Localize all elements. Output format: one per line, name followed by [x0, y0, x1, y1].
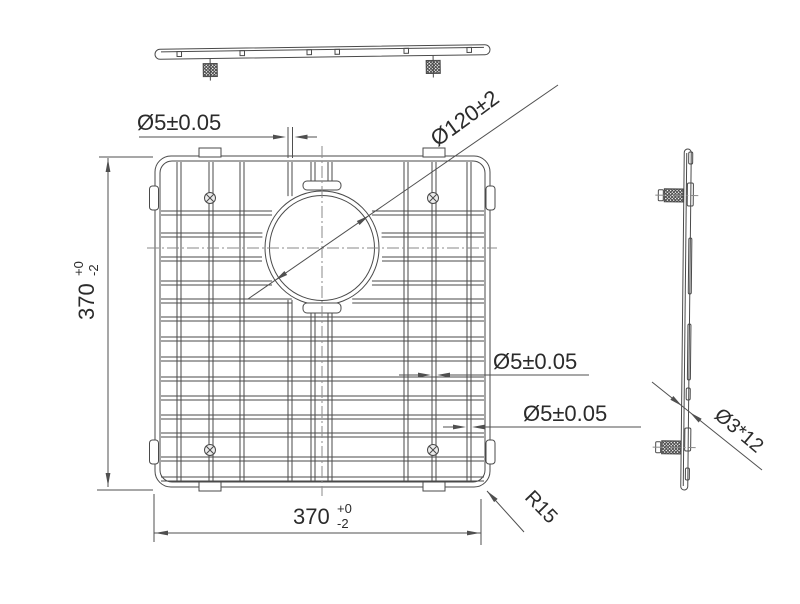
dimension-arrow: [273, 135, 286, 140]
label-width-dimension: 370 +0 -2: [293, 501, 352, 531]
height-tol-plus: +0: [71, 261, 86, 276]
edge-tab: [199, 482, 221, 491]
front-view: [147, 146, 497, 496]
width-tol-minus: -2: [337, 516, 349, 531]
screw: [205, 445, 216, 456]
dimension-arrow: [453, 425, 466, 430]
dimension-arrow: [295, 135, 308, 140]
width-value: 370: [293, 504, 330, 529]
rubber-foot: [190, 63, 242, 77]
label-hole-diameter: Ø120±2: [426, 85, 504, 151]
sink-grid-drawing: Ø5±0.05 Ø120±2 370 +0 -2 Ø5±0.05 Ø5±0.05…: [0, 0, 800, 604]
height-tol-minus: -2: [86, 264, 101, 276]
top-view: [155, 45, 490, 82]
screw: [428, 193, 439, 204]
label-wire-diameter-mid: Ø5±0.05: [493, 349, 577, 374]
wire-end-tick: [177, 51, 182, 56]
top-view-bar: [155, 45, 490, 60]
wire-end-tick: [240, 51, 245, 56]
wire-end-tick: [307, 50, 312, 55]
rubber-foot: [413, 60, 465, 74]
side-bumper: [150, 186, 159, 210]
dimension-arrow: [467, 531, 480, 536]
wire-end-tick: [404, 48, 409, 53]
label-height-dimension: 370 +0 -2: [71, 261, 101, 320]
height-value: 370: [74, 283, 99, 320]
side-bumper: [150, 440, 159, 464]
dimension-line: [248, 85, 558, 299]
width-tol-plus: +0: [337, 501, 352, 516]
label-side-stud-size: Ø3*12: [710, 404, 768, 457]
label-corner-radius: R15: [520, 486, 561, 528]
label-wire-diameter-bottom: Ø5±0.05: [523, 401, 607, 426]
dimension-arrow: [106, 159, 111, 172]
dimension-arrow: [155, 531, 168, 536]
side-bumper: [486, 440, 495, 464]
screw: [205, 193, 216, 204]
dimension-arrow: [472, 425, 485, 430]
dimension-labels: Ø5±0.05 Ø120±2 370 +0 -2 Ø5±0.05 Ø5±0.05…: [71, 85, 768, 531]
dimension-arrow: [106, 473, 111, 486]
wire-end-tick: [467, 47, 472, 52]
side-bumper: [486, 186, 495, 210]
edge-tab: [199, 148, 221, 157]
technical-drawing-page: Ø5±0.05 Ø120±2 370 +0 -2 Ø5±0.05 Ø5±0.05…: [0, 0, 800, 604]
side-view: [648, 149, 709, 491]
wire-end-tick: [335, 49, 340, 54]
label-wire-diameter-top: Ø5±0.05: [137, 110, 221, 135]
edge-tab: [423, 482, 445, 491]
screw: [428, 445, 439, 456]
